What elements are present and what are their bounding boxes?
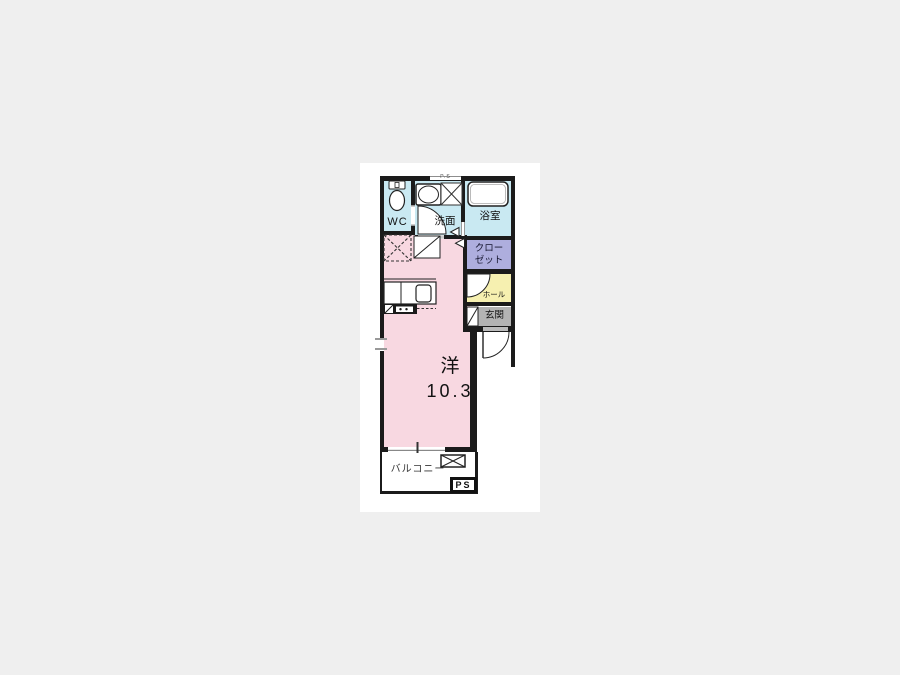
closet-label: クロー ゼット: [467, 243, 511, 266]
closet-label-line2: ゼット: [467, 255, 511, 267]
bathtub: [468, 182, 508, 206]
front-door-swing: [483, 332, 509, 358]
entrance-step: [467, 307, 478, 326]
balcony-label: バルコニー: [388, 464, 448, 475]
wc-door-opening: [411, 205, 415, 226]
closet-label-line1: クロー: [467, 243, 511, 255]
open-door-panel: [414, 236, 440, 258]
washing-machine-space: [441, 183, 462, 205]
ps-shaft-box: PS: [450, 477, 477, 493]
page-background: P.S WC 洗面 浴室 クロー ゼット ホール 玄関 洋 10.3 バルコニー…: [0, 0, 900, 675]
hall-label: ホール: [477, 291, 511, 299]
bathroom-label: 浴室: [473, 211, 507, 223]
wash-basin: [416, 184, 441, 205]
toilet: [389, 181, 405, 211]
entrance-label: 玄関: [478, 311, 511, 321]
kitchen-sink: [416, 285, 431, 302]
main-room-floor: [384, 231, 470, 452]
wc-label: WC: [384, 216, 411, 228]
ps-top-label: P.S: [430, 175, 461, 181]
washroom-label: 洗面: [429, 216, 461, 228]
room-size-label: 10.3: [415, 382, 485, 402]
kitchen-stove: [396, 307, 413, 313]
floorplan-panel: P.S WC 洗面 浴室 クロー ゼット ホール 玄関 洋 10.3 バルコニー…: [360, 163, 540, 512]
room-type-label: 洋: [420, 357, 480, 378]
kitchen-unit: [384, 279, 436, 314]
front-door-threshold: [483, 327, 508, 331]
